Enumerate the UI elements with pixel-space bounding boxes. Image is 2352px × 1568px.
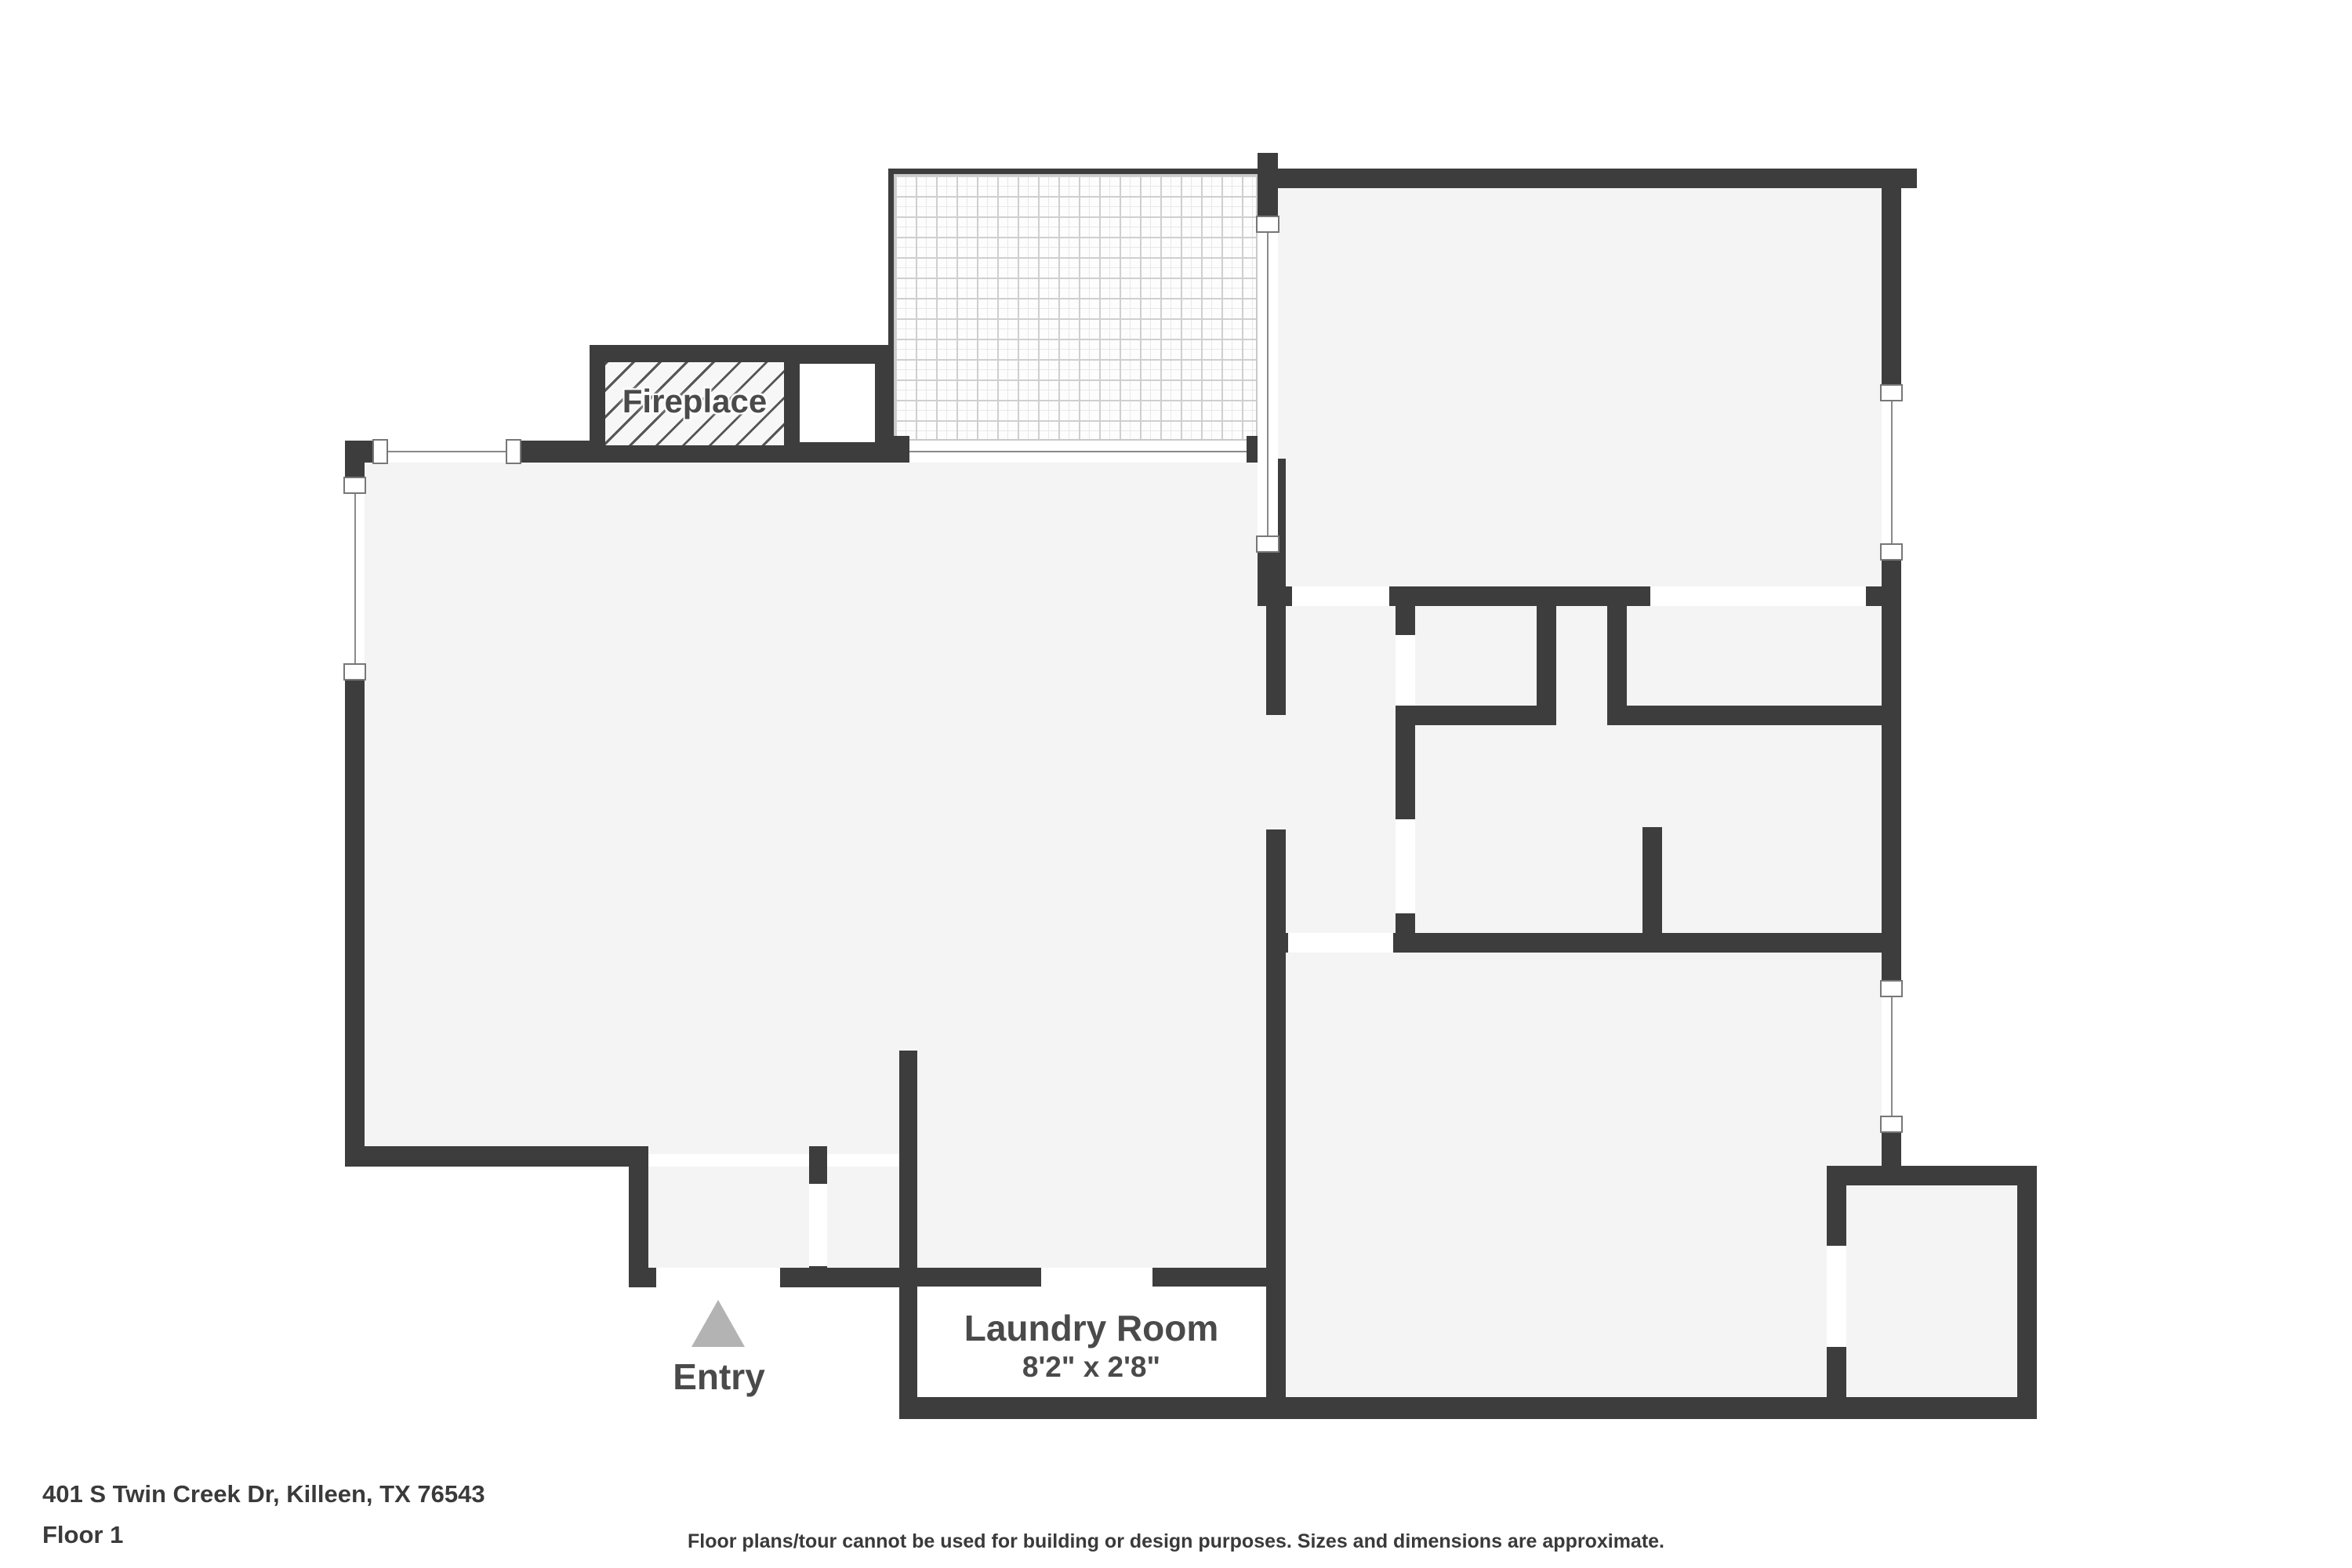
room-floor-hall-closet (1415, 606, 1537, 706)
window-cap (1256, 535, 1279, 553)
room-floor-bedroom2-closet (1846, 1185, 2023, 1397)
door-opening (1827, 1246, 1846, 1347)
door-opening (1292, 586, 1389, 606)
room-name: Fireplace (622, 383, 767, 420)
room-floor-kitchen-lower (917, 1146, 1266, 1272)
window-cap (372, 439, 388, 464)
room-label-fireplace: Fireplace (622, 383, 767, 420)
window-cap (343, 477, 366, 494)
window-cap (1256, 216, 1279, 233)
room-floor-bedroom-2 (1286, 953, 1886, 1397)
wall (1827, 1166, 2037, 1185)
room-floor-bedroom-1 (1278, 188, 1897, 586)
window-pane (354, 477, 356, 681)
wall (1607, 706, 1897, 725)
wall (1258, 169, 1917, 188)
window-cap (343, 663, 366, 681)
window-cap (1880, 384, 1903, 401)
door-opening (809, 1184, 827, 1266)
window-cap (1880, 1116, 1903, 1133)
door-opening (656, 1268, 780, 1287)
wall (888, 436, 909, 463)
window-pane (372, 451, 521, 452)
room-name: Entry (673, 1356, 765, 1398)
room-floor-bath-nook (1556, 606, 1607, 725)
room-label-laundry-room: Laundry Room 8'2" x 2'8" (964, 1308, 1219, 1385)
room-floor-hallway-opening (1266, 715, 1286, 829)
room-dims: 8'2" x 2'8" (964, 1349, 1219, 1385)
wall (888, 169, 894, 443)
window (909, 442, 1247, 461)
room-name: Laundry Room (964, 1308, 1219, 1349)
door-opening (1288, 933, 1393, 953)
door-opening (1041, 1268, 1152, 1287)
window-cap (1880, 543, 1903, 561)
window-pane (909, 451, 1247, 452)
window-cap (1880, 980, 1903, 997)
entry-arrow-icon (691, 1300, 745, 1347)
wall (1642, 827, 1662, 933)
patio-tile-floor (894, 174, 1258, 441)
wall (899, 1051, 917, 1419)
wall (629, 1146, 648, 1287)
window (1882, 980, 1901, 1133)
window (372, 441, 521, 463)
window (1258, 216, 1278, 553)
wall (345, 1146, 648, 1167)
window-pane (1267, 216, 1269, 553)
room-floor-foyer-closet (827, 1167, 899, 1269)
wall (899, 1397, 2037, 1419)
window-cap (506, 439, 521, 464)
room-floor-foyer (648, 1167, 809, 1269)
window (345, 477, 365, 681)
wall (1266, 829, 1286, 1419)
room-floor-living-dining-kitchen (365, 463, 1266, 1154)
floor-number-text: Floor 1 (42, 1521, 123, 1549)
floor-plan: Patio 8'9" x 6'10" Bedroom 14'3" x 10'0"… (0, 0, 2352, 1568)
window-pane (1891, 384, 1893, 561)
door-opening (1396, 819, 1415, 913)
disclaimer-text: Floor plans/tour cannot be used for buil… (688, 1530, 1664, 1553)
room-floor-bedroom1-closet (1627, 606, 1897, 706)
address-text: 401 S Twin Creek Dr, Killeen, TX 76543 (42, 1480, 485, 1508)
door-opening (1396, 635, 1415, 706)
room-floor-hallway (1277, 586, 1396, 933)
door-opening (1650, 586, 1866, 606)
wall (2017, 1166, 2037, 1419)
entry-label: Entry (673, 1356, 765, 1398)
window-pane (1891, 980, 1893, 1133)
wall (1396, 706, 1556, 725)
window (1882, 384, 1901, 561)
wall (888, 169, 1261, 174)
